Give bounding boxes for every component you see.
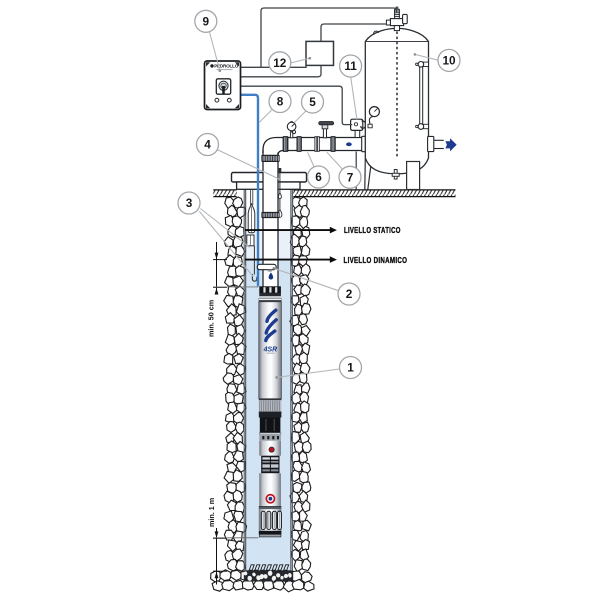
- svg-text:10: 10: [442, 54, 456, 68]
- svg-text:min. 50 cm: min. 50 cm: [206, 300, 215, 337]
- svg-text:2: 2: [346, 287, 353, 301]
- svg-text:min. 1 m: min. 1 m: [207, 498, 216, 527]
- svg-text:LIVELLO DINAMICO: LIVELLO DINAMICO: [344, 255, 408, 265]
- svg-text:4: 4: [204, 138, 211, 152]
- svg-text:6: 6: [315, 170, 322, 184]
- svg-text:3: 3: [186, 196, 193, 210]
- svg-text:7: 7: [347, 171, 354, 185]
- svg-text:4SR: 4SR: [263, 346, 278, 353]
- svg-text:LIVELLO STATICO: LIVELLO STATICO: [344, 225, 401, 235]
- svg-text:5: 5: [309, 95, 316, 109]
- svg-text:9: 9: [203, 15, 210, 29]
- svg-text:1: 1: [347, 361, 354, 375]
- svg-text:11: 11: [344, 59, 357, 73]
- svg-text:12: 12: [273, 56, 287, 70]
- svg-text:8: 8: [277, 95, 284, 109]
